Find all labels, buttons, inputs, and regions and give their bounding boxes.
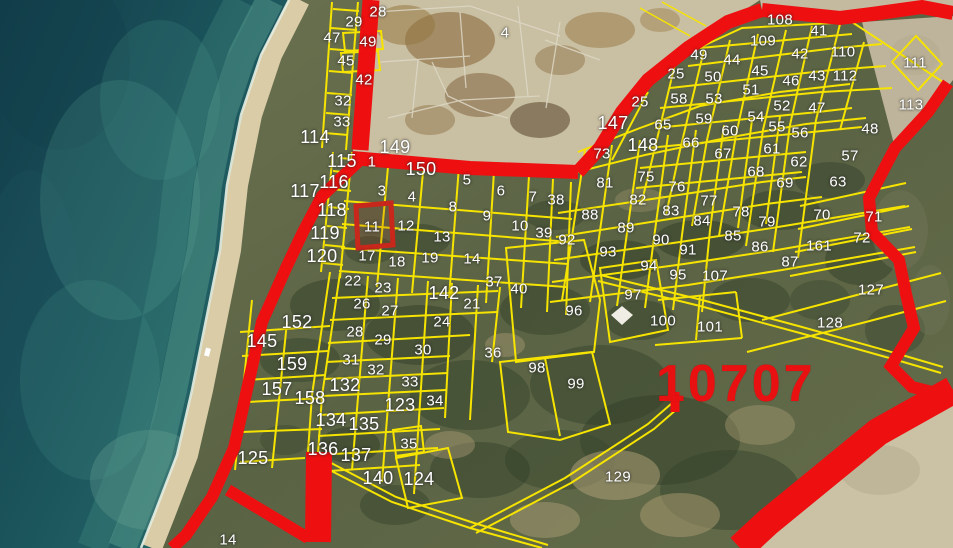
selected-parcel-highlight[interactable] bbox=[356, 203, 393, 248]
zone-code-label: 10707 bbox=[656, 358, 816, 410]
cadastral-map[interactable]: 2829474945423233114149115115011611735647… bbox=[0, 0, 953, 548]
map-canvas bbox=[0, 0, 953, 548]
